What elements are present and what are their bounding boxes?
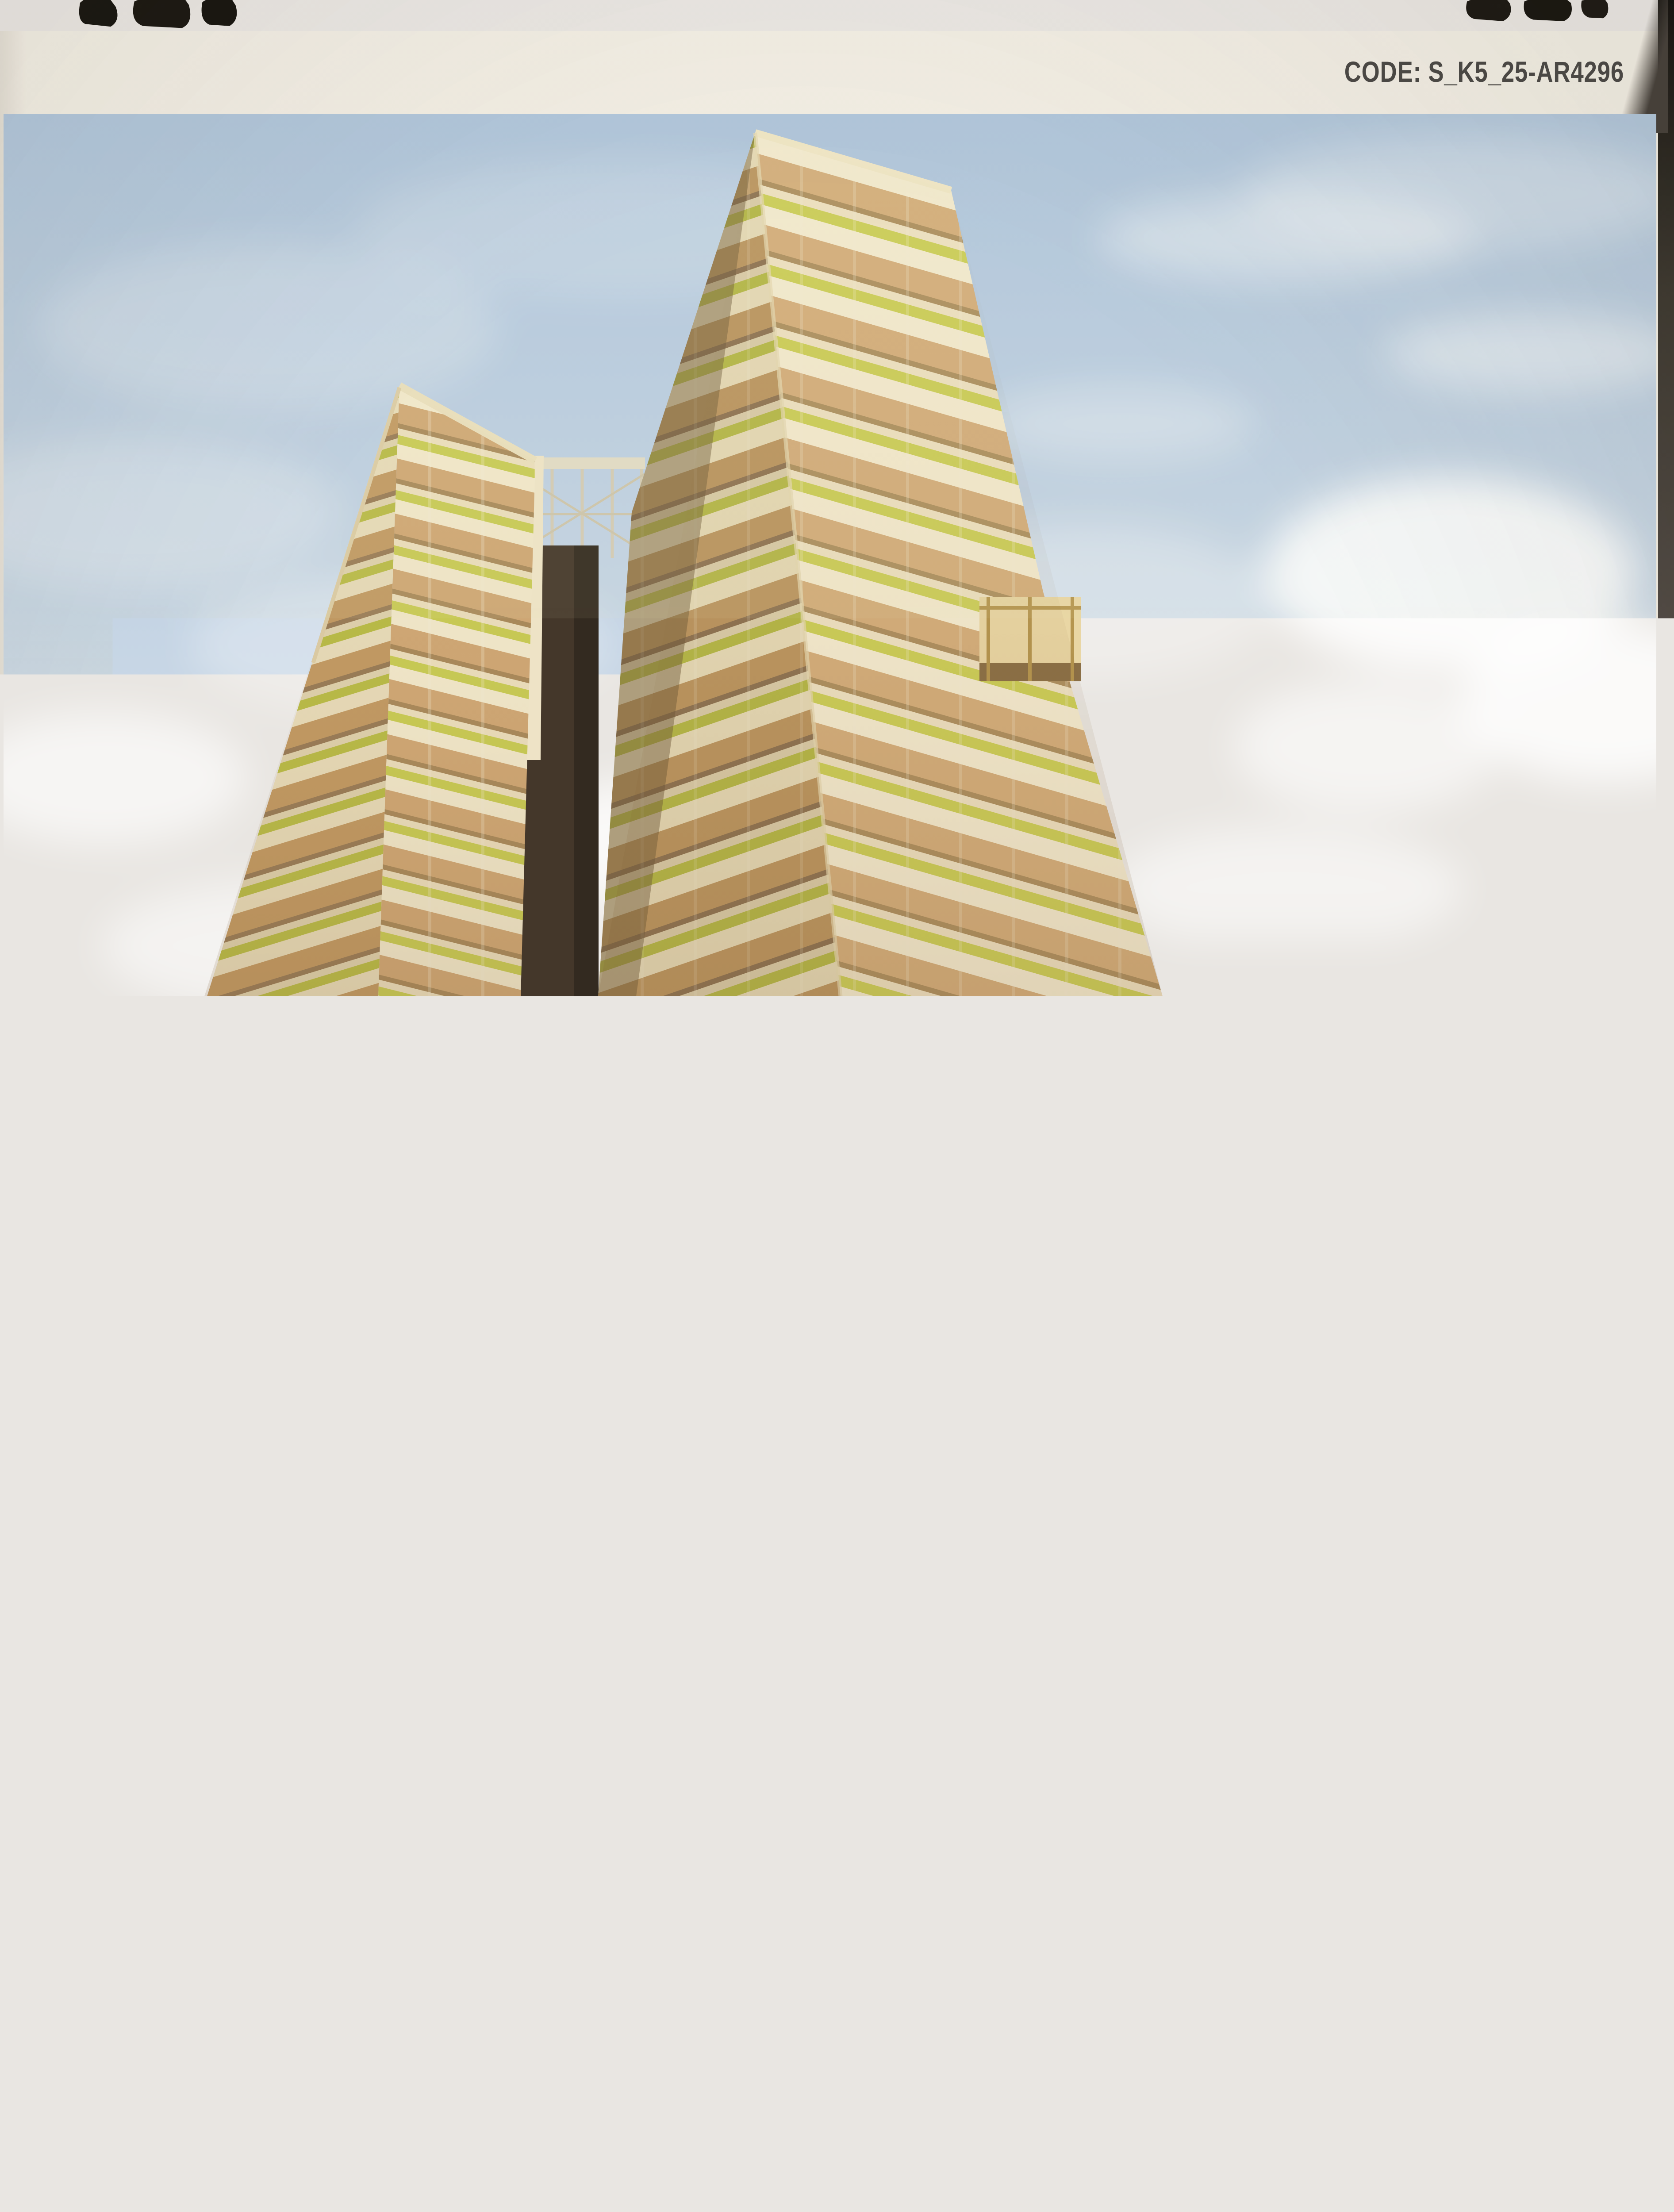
svg-text:1: 1 bbox=[1119, 1693, 1139, 1733]
svg-text:5: 5 bbox=[1235, 1492, 1255, 1532]
svg-text:2: 2 bbox=[1256, 1590, 1276, 1630]
svg-text:8: 8 bbox=[1040, 1652, 1060, 1693]
svg-text:7: 7 bbox=[1327, 1601, 1347, 1642]
svg-text:6: 6 bbox=[1142, 1767, 1163, 1808]
svg-text:4: 4 bbox=[1132, 1575, 1152, 1615]
svg-text:3: 3 bbox=[1141, 1624, 1161, 1664]
